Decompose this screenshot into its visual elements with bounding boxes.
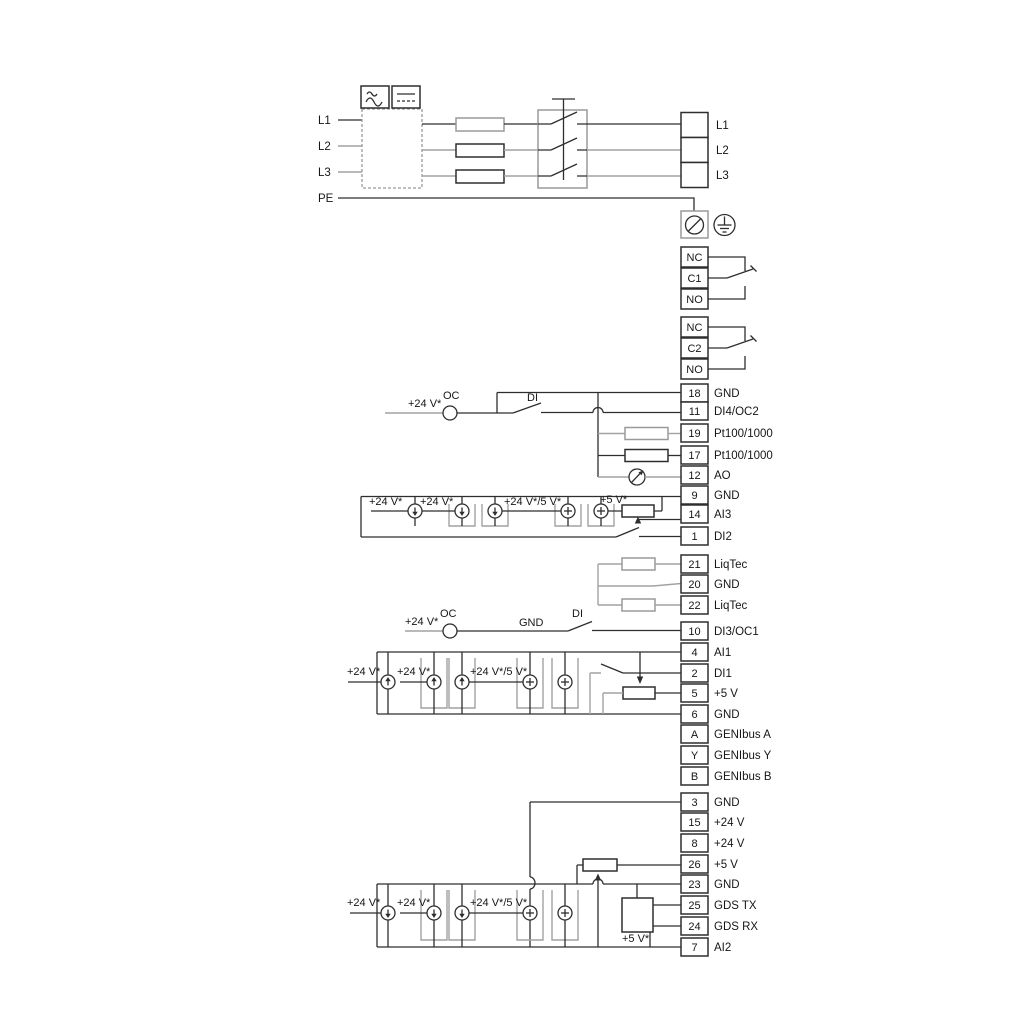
relay1-terminal-block: NCC1NO — [681, 247, 708, 309]
dc-symbol-icon — [392, 86, 420, 108]
power-input-section: L1 L2 L3 PE — [318, 86, 735, 238]
ai2-gds-circuit: +24 V* +24 V* +24 V*/5 V* +5 V* — [347, 802, 681, 947]
relay2-terminal-block: NCC2NO — [681, 317, 708, 379]
pe-terminal-icon — [681, 211, 708, 238]
terminal-label: GND — [714, 388, 740, 400]
label-24v: +24 V* — [405, 616, 439, 628]
terminal-label: DI4/OC2 — [714, 406, 759, 418]
terminal-label: +24 V — [714, 817, 745, 829]
di3-oc1-circuit: +24 V* OC GND DI — [405, 608, 681, 638]
open-collector-icon — [443, 624, 457, 638]
terminal-label: GND — [714, 797, 740, 809]
terminal-number: 10 — [688, 626, 700, 638]
terminal-number: 18 — [688, 388, 700, 400]
di4-oc2-circuit: +24 V* OC DI — [385, 390, 681, 485]
digital-input-switch-icon — [601, 664, 623, 673]
terminal-label: GDS TX — [714, 900, 757, 912]
label-24v: +24 V* — [347, 666, 381, 678]
liqtec-terminal-strip: 21LiqTec20GND22LiqTec — [681, 555, 747, 614]
terminal-label: DI1 — [714, 668, 732, 680]
io1-terminal-strip: 18GND11DI4/OC219Pt100/100017Pt100/100012… — [681, 384, 773, 545]
terminal-number: B — [691, 771, 698, 783]
output-terminal-block: L1L2L3 — [681, 113, 729, 188]
terminal-label: GND — [714, 579, 740, 591]
terminal-label: AI2 — [714, 942, 731, 954]
terminal-label: DI2 — [714, 531, 732, 543]
terminal-number: 9 — [691, 490, 697, 502]
terminal-number: NO — [686, 364, 703, 376]
terminal-label: Pt100/1000 — [714, 450, 773, 462]
gds-sensor-box — [622, 898, 653, 932]
label-24v: +24 V* — [397, 897, 431, 909]
fuse-icon — [456, 118, 504, 131]
input-label-l3: L3 — [318, 167, 331, 179]
resistor-icon — [625, 428, 668, 440]
terminal-number: 5 — [691, 688, 697, 700]
analog-output-meter-icon — [629, 469, 645, 485]
terminal-number: 8 — [691, 838, 697, 850]
label-di: DI — [527, 392, 538, 404]
wiper-arrow-icon — [637, 677, 643, 685]
ac-symbol-icon — [361, 86, 389, 108]
fuse-icon — [456, 144, 504, 157]
rfi-filter-box — [362, 109, 422, 188]
terminal-number: NO — [686, 294, 703, 306]
fuse-icon — [456, 170, 504, 183]
terminal-label: AI3 — [714, 509, 731, 521]
label-24v: +24 V* — [397, 666, 431, 678]
terminal-number: Y — [691, 750, 699, 762]
wiper-arrow-icon — [595, 874, 601, 881]
terminal-label: AI1 — [714, 647, 731, 659]
terminal-number: 25 — [688, 900, 700, 912]
terminal-label: +5 V — [714, 688, 738, 700]
label-24v-5v: +24 V*/5 V* — [470, 666, 528, 678]
terminal-label: GENIbus Y — [714, 750, 772, 762]
io2-terminal-strip: 10DI3/OC14AI12DI15+5 V6GNDAGENIbus AYGEN… — [681, 622, 772, 785]
terminal-number: 4 — [691, 647, 697, 659]
ai1-sensor-options: +24 V* +24 V* +24 V*/5 V* — [347, 652, 681, 714]
terminal-label: GDS RX — [714, 921, 758, 933]
terminal-number: 22 — [688, 600, 700, 612]
terminal-number: 11 — [689, 406, 700, 418]
terminal-number: 6 — [691, 709, 697, 721]
terminal-label: LiqTec — [714, 600, 747, 612]
terminal-number: 2 — [691, 668, 697, 680]
resistor-icon — [622, 599, 655, 611]
terminal-label: DI3/OC1 — [714, 626, 759, 638]
potentiometer-icon — [623, 687, 655, 699]
label-24v-5v: +24 V*/5 V* — [504, 496, 562, 508]
disconnect-switch-icon — [538, 99, 587, 188]
terminal-number: 24 — [688, 921, 700, 933]
potentiometer-icon — [583, 859, 617, 871]
terminal-label: GND — [714, 490, 740, 502]
label-24v: +24 V* — [369, 496, 403, 508]
terminal-label: GENIbus B — [714, 771, 772, 783]
digital-input-switch-icon — [568, 622, 592, 632]
relay2-contact-icon — [708, 327, 757, 369]
terminal-number: 3 — [691, 797, 697, 809]
digital-input-switch-icon — [616, 528, 639, 538]
label-24v: +24 V* — [408, 398, 442, 410]
input-label-pe: PE — [318, 193, 334, 205]
wiring-diagram: L1 L2 L3 PE — [0, 0, 1024, 1024]
resistor-icon — [622, 558, 655, 570]
diagram-svg: L1 L2 L3 PE — [0, 0, 1024, 1024]
terminal-number: 26 — [688, 859, 700, 871]
earth-ground-icon — [714, 215, 735, 236]
terminal-number: 1 — [691, 531, 697, 543]
label-5v: +5 V* — [622, 933, 650, 945]
terminal-label: GENIbus A — [714, 729, 771, 741]
terminal-cell — [681, 113, 708, 138]
terminal-number: 20 — [688, 579, 700, 591]
terminal-number: 12 — [688, 470, 700, 482]
terminal-number: 17 — [688, 450, 700, 462]
terminal-number: 23 — [688, 879, 700, 891]
terminal-number: 21 — [688, 559, 700, 571]
ai3-sensor-options: +24 V* +24 V* +24 V*/5 V* +5 V* — [361, 494, 681, 537]
terminal-label: Pt100/1000 — [714, 428, 773, 440]
terminal-label: +24 V — [714, 838, 745, 850]
terminal-label: L1 — [716, 120, 729, 132]
terminal-label: AO — [714, 470, 731, 482]
input-label-l1: L1 — [318, 115, 331, 127]
liqtec-circuit — [598, 558, 681, 611]
terminal-label: LiqTec — [714, 559, 747, 571]
terminal-label: GND — [714, 709, 740, 721]
terminal-number: C1 — [687, 273, 701, 285]
wire-hop — [530, 877, 535, 889]
io3-terminal-strip: 3GND15+24 V8+24 V26+5 V23GND25GDS TX24GD… — [681, 793, 758, 956]
terminal-number: 7 — [691, 942, 697, 954]
terminal-cell — [681, 163, 708, 188]
open-collector-icon — [443, 406, 457, 420]
potentiometer-icon — [622, 505, 654, 517]
label-24v-5v: +24 V*/5 V* — [470, 897, 528, 909]
label-24v: +24 V* — [420, 496, 454, 508]
terminal-number: 15 — [688, 817, 700, 829]
terminal-number: 14 — [688, 509, 700, 521]
relay1-contact-icon — [708, 257, 757, 299]
terminal-label: L2 — [716, 145, 729, 157]
label-oc: OC — [440, 608, 457, 620]
resistor-icon — [625, 450, 668, 462]
input-label-l2: L2 — [318, 141, 331, 153]
label-24v: +24 V* — [347, 897, 381, 909]
terminal-label: L3 — [716, 170, 729, 182]
terminal-label: GND — [714, 879, 740, 891]
terminal-number: A — [691, 729, 699, 741]
pe-wire — [338, 198, 694, 211]
label-gnd: GND — [519, 617, 544, 629]
terminal-cell — [681, 138, 708, 163]
terminal-label: +5 V — [714, 859, 738, 871]
terminal-number: C2 — [687, 343, 701, 355]
terminal-number: NC — [687, 252, 703, 264]
label-oc: OC — [443, 390, 460, 402]
digital-input-switch-icon — [513, 403, 541, 413]
terminal-number: NC — [687, 322, 703, 334]
terminal-number: 19 — [688, 428, 700, 440]
label-di: DI — [572, 608, 583, 620]
